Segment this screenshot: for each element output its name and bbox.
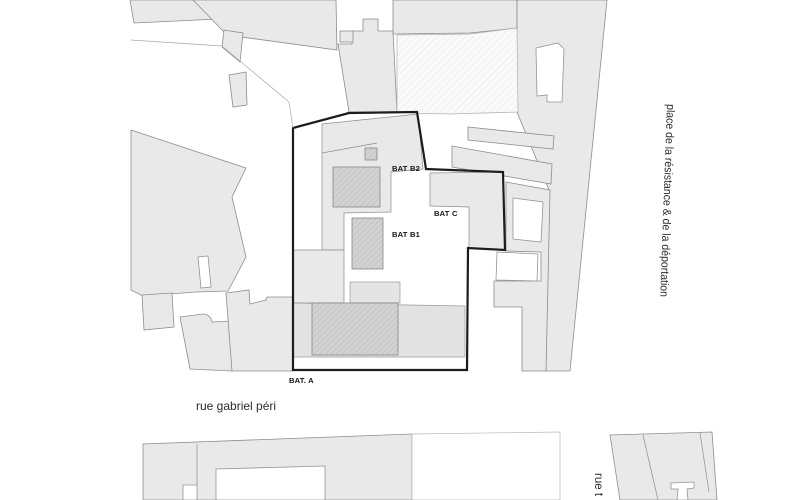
parcel-hatched-top-right bbox=[397, 28, 518, 114]
bat-b2-building bbox=[333, 167, 380, 207]
courtyard-east-gap bbox=[513, 198, 543, 242]
courtyard-bottom-strip bbox=[216, 466, 325, 500]
bat-c-label: BAT C bbox=[434, 209, 458, 218]
parcel-bottom-white bbox=[412, 432, 560, 500]
street-label-rue-partial: rue t bbox=[592, 473, 604, 497]
bat-b1-label: BAT B1 bbox=[392, 230, 421, 239]
bat-a-building bbox=[312, 303, 398, 355]
courtyard-east bbox=[496, 252, 538, 281]
courtyard-pennant bbox=[536, 43, 564, 102]
parcel-left-stepped bbox=[226, 290, 293, 371]
parcel-step-square bbox=[340, 31, 353, 42]
bat-b1-building bbox=[352, 218, 383, 269]
site-lower-left-parcel bbox=[293, 250, 344, 303]
bat-a-label: BAT. A bbox=[289, 376, 314, 385]
courtyard-strip-notch bbox=[183, 485, 197, 500]
site-plan-svg: BAT B2 BAT C BAT B1 BAT. A rue gabriel p… bbox=[0, 0, 800, 500]
low-building bbox=[350, 282, 400, 303]
parcel-top-right bbox=[393, 0, 517, 34]
small-annex-building bbox=[365, 148, 377, 160]
parcel-left-small bbox=[142, 293, 174, 330]
parcel-bottom-right-block bbox=[610, 432, 717, 500]
bat-b2-label: BAT B2 bbox=[392, 164, 420, 173]
street-label-rue-gabriel-peri: rue gabriel péri bbox=[196, 399, 276, 413]
site-plan-page: BAT B2 BAT C BAT B1 BAT. A rue gabriel p… bbox=[0, 0, 800, 500]
